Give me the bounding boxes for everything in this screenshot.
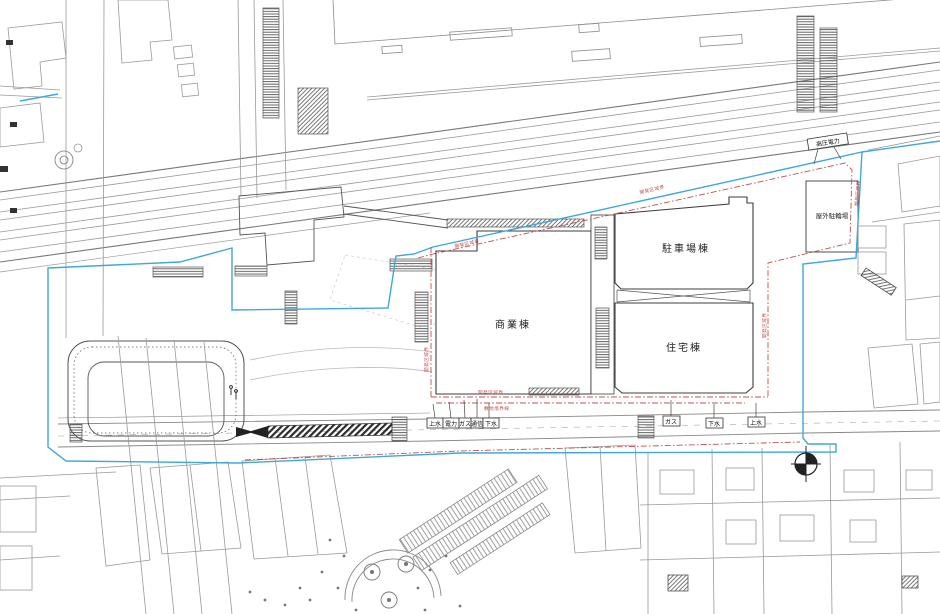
small-structure-marks bbox=[0, 40, 17, 213]
northwest-streets bbox=[0, 0, 286, 338]
south-city-blocks bbox=[96, 445, 641, 591]
utility-gas-label: ガス bbox=[459, 420, 471, 428]
boundary-annotation: 開発区域界 bbox=[423, 347, 430, 372]
east-city-blocks bbox=[858, 136, 940, 408]
southwest-streets bbox=[0, 336, 232, 614]
southeast-blocks bbox=[640, 442, 940, 614]
residential-building-label: 住宅棟 bbox=[666, 341, 702, 354]
utility-water-label: 上水 bbox=[429, 420, 441, 428]
tree-circles bbox=[364, 556, 414, 608]
commercial-building bbox=[436, 231, 591, 394]
median-stripe-band bbox=[248, 423, 392, 438]
utility-gas-east-label: ガス bbox=[665, 418, 677, 426]
rail-yard bbox=[333, 0, 940, 61]
station-structures bbox=[239, 187, 470, 380]
boundary-annotation: 開発区域界 bbox=[478, 389, 503, 396]
commercial-building-label: 商業棟 bbox=[495, 318, 531, 331]
stair-hatch bbox=[285, 291, 297, 324]
tree-symbol bbox=[55, 151, 73, 169]
site-plan-canvas: 商業棟 駐車場棟 住宅棟 屋外駐輪場 bbox=[0, 0, 940, 614]
site-plan-drawing: 商業棟 駐車場棟 住宅棟 屋外駐輪場 bbox=[0, 0, 940, 614]
utility-leader-lines bbox=[433, 399, 489, 418]
parking-building-label: 駐車場棟 bbox=[662, 242, 710, 255]
parking-building bbox=[615, 197, 753, 289]
bus-rotary bbox=[68, 341, 254, 441]
utility-telecom-label: 通信 bbox=[471, 420, 483, 428]
footbridge-deck-hatch bbox=[447, 219, 584, 227]
utility-sewer-east-label: 下水 bbox=[708, 420, 720, 428]
boundary-annotation: 敷地境界線 bbox=[484, 405, 509, 412]
blue-railway-segment bbox=[862, 141, 940, 152]
boundary-annotation: 開発区域界 bbox=[761, 313, 768, 338]
northwest-buildings bbox=[0, 0, 199, 213]
stair-hatch bbox=[415, 292, 428, 342]
bicycle-parking-label: 屋外駐輪場 bbox=[816, 211, 849, 220]
boundary-annotation: 開発区域界 bbox=[639, 183, 665, 196]
utility-water-east-label: 上水 bbox=[750, 419, 762, 427]
arcade-row-houses bbox=[399, 457, 560, 591]
building-cross-bracing bbox=[617, 290, 750, 302]
red-road-segment bbox=[245, 442, 800, 460]
rotary-exit-arrow bbox=[236, 427, 254, 437]
utility-power-label: 電力 bbox=[445, 420, 457, 428]
site-buildings bbox=[436, 181, 858, 394]
utility-sewer-label: 下水 bbox=[485, 420, 497, 428]
